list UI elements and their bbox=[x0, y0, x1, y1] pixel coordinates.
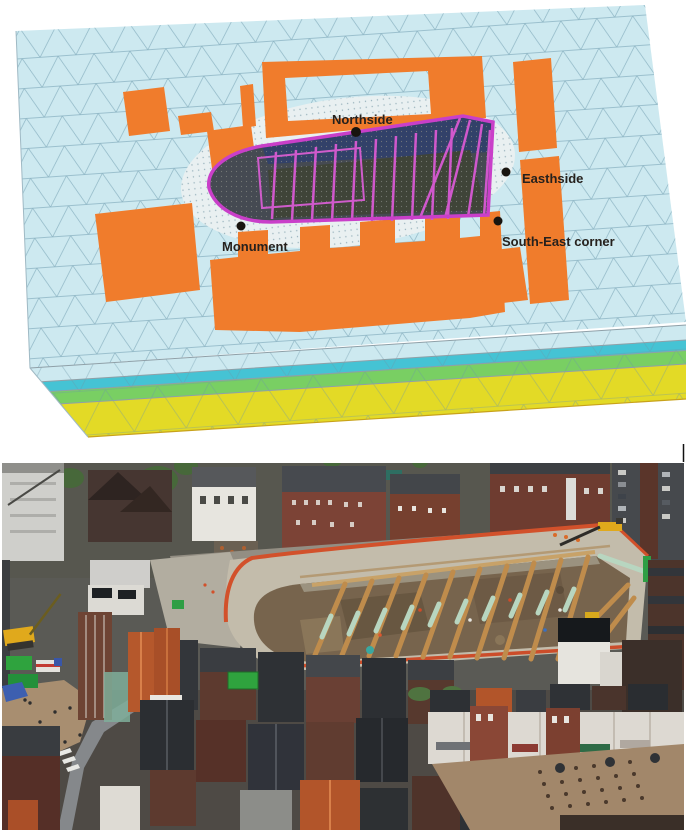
figure-canvas: Northside Easthside Monument South-East … bbox=[0, 0, 687, 830]
green-portacabin bbox=[172, 600, 184, 609]
bottom-left-houses bbox=[2, 726, 60, 830]
green-site-hut bbox=[228, 672, 258, 689]
building-footprint bbox=[513, 58, 557, 152]
teal-tank bbox=[366, 646, 374, 654]
building-footprint bbox=[123, 87, 170, 136]
dark-brick-house bbox=[88, 470, 172, 542]
aerial-photo bbox=[0, 453, 684, 830]
label-easthside: Easthside bbox=[522, 171, 583, 186]
white-tower-building bbox=[2, 463, 64, 561]
marker-dot-northside bbox=[351, 127, 361, 137]
brick-apartment-row bbox=[282, 466, 386, 554]
label-south-east-corner: South-East corner bbox=[502, 234, 615, 249]
label-northside: Northside bbox=[332, 112, 393, 127]
label-monument: Monument bbox=[222, 239, 288, 254]
marker-dot-monument bbox=[237, 222, 246, 231]
figure-page: Northside Easthside Monument South-East … bbox=[0, 0, 687, 830]
marker-dot-south-east bbox=[494, 217, 503, 226]
truck bbox=[36, 658, 62, 672]
long-brick-building bbox=[490, 462, 610, 532]
fe-mesh-model: Northside Easthside Monument South-East … bbox=[16, 5, 686, 437]
marker-dot-easthside bbox=[502, 168, 511, 177]
brick-apartment-block bbox=[390, 474, 460, 546]
building-footprint bbox=[478, 247, 528, 305]
building-footprint bbox=[95, 203, 200, 302]
